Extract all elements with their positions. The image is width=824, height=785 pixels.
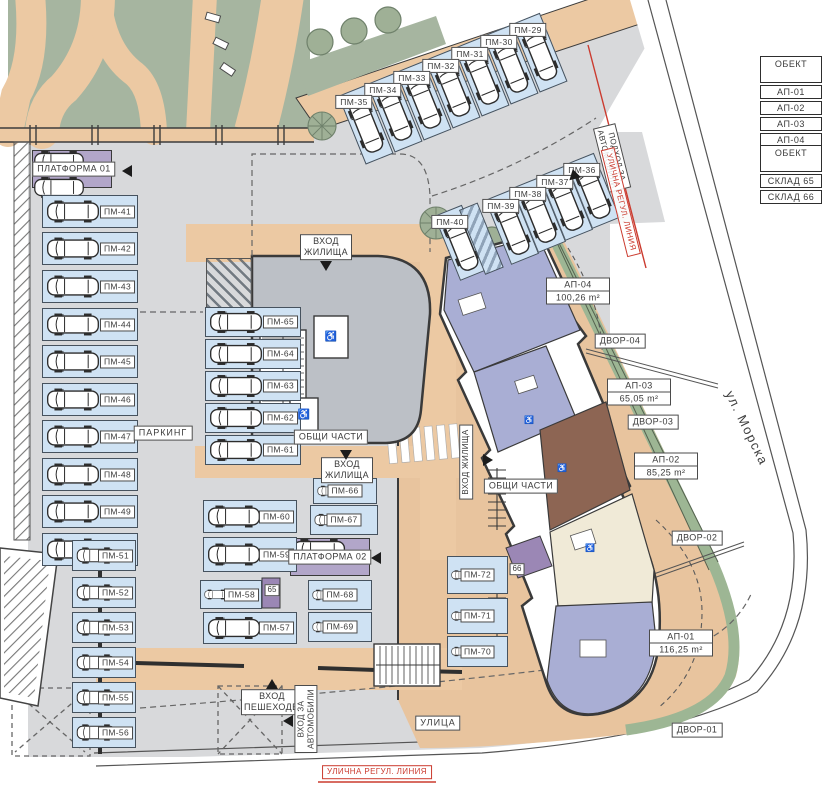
parking-spot-label: ПМ-49 bbox=[100, 505, 135, 518]
car-icon bbox=[207, 504, 261, 529]
car-icon bbox=[207, 616, 261, 640]
parking-spot-45: ПМ-45 bbox=[42, 345, 138, 378]
parking-spot-67: ПМ-67 bbox=[310, 505, 378, 535]
car-icon bbox=[209, 343, 263, 365]
bottom-stairs bbox=[374, 644, 440, 686]
yard-label-dvor-04: ДВОР-04 bbox=[595, 334, 646, 349]
parking-spot-61: ПМ-61 bbox=[205, 435, 301, 465]
parking-spot-51: ПМ-51 bbox=[72, 540, 136, 571]
parking-spot-58: ПМ-58 bbox=[200, 580, 262, 609]
parking-spot-label: ПМ-41 bbox=[100, 205, 135, 218]
parking-spot-label: ПМ-54 bbox=[98, 656, 133, 669]
legend-header: ОБЕКТ bbox=[760, 145, 822, 172]
car-icon bbox=[46, 349, 100, 374]
storage-66-label: 66 bbox=[510, 563, 525, 575]
car-icon bbox=[46, 424, 100, 449]
parking-spot-60: ПМ-60 bbox=[203, 500, 297, 533]
car-icon bbox=[46, 312, 100, 337]
entrance-arrow-icon bbox=[483, 454, 493, 466]
parking-spot-70: ПМ-70 bbox=[447, 636, 508, 667]
car-icon bbox=[207, 541, 261, 568]
legend-table-storage: ОБЕКТ СКЛАД 65 СКЛАД 66 bbox=[760, 145, 822, 206]
parking-spot-62: ПМ-62 bbox=[205, 403, 301, 433]
parking-spot-label: ПМ-40 bbox=[431, 215, 468, 229]
car-icon bbox=[46, 199, 100, 224]
car-icon bbox=[46, 274, 100, 299]
parking-spot-label: ПМ-69 bbox=[323, 620, 358, 633]
parking-spot-label: ПМ-62 bbox=[263, 411, 298, 424]
apartment-label-ap-04: АП-04 100,26 m² bbox=[546, 278, 610, 305]
entrance-residential-top-label: ВХОД ЖИЛИЩА bbox=[300, 234, 352, 260]
parking-spot-label: ПМ-65 bbox=[263, 315, 298, 328]
regulation-line-label-bottom: УЛИЧНА РЕГУЛ. ЛИНИЯ bbox=[322, 765, 432, 779]
parking-spot-label: ПМ-57 bbox=[259, 621, 294, 634]
parking-spot-43: ПМ-43 bbox=[42, 270, 138, 303]
parking-spot-64: ПМ-64 bbox=[205, 339, 301, 369]
common-areas-label-2: ОБЩИ ЧАСТИ bbox=[484, 479, 558, 494]
parking-spot-41: ПМ-41 bbox=[42, 195, 138, 228]
apartment-id: АП-04 bbox=[546, 278, 610, 292]
entrance-residential-right-label: ВХОД ЖИЛИЩА bbox=[459, 424, 473, 499]
car-icon bbox=[46, 499, 100, 524]
car-icon bbox=[46, 462, 100, 487]
legend-row: СКЛАД 66 bbox=[760, 190, 822, 204]
parking-spot-56: ПМ-56 bbox=[72, 717, 136, 748]
parking-spot-label: ПМ-67 bbox=[327, 513, 362, 526]
parking-spot-label: ПМ-63 bbox=[263, 379, 298, 392]
parking-spot-label: ПМ-71 bbox=[460, 609, 495, 622]
apartment-id: АП-01 bbox=[649, 630, 713, 644]
parking-spot-46: ПМ-46 bbox=[42, 383, 138, 416]
platform-2-label: ПЛАТФОРМА 02 bbox=[288, 550, 371, 565]
parking-spot-label: ПМ-35 bbox=[335, 95, 372, 109]
platform-2-arrow-icon bbox=[371, 552, 381, 564]
entrance-vehicles-label: ВХОД ЗА АВТОМОБИЛИ bbox=[294, 685, 317, 753]
parking-spot-label: ПМ-72 bbox=[460, 568, 495, 581]
parking-spot-label: ПМ-42 bbox=[100, 242, 135, 255]
parking-spot-47: ПМ-47 bbox=[42, 420, 138, 453]
parking-spot-53: ПМ-53 bbox=[72, 612, 136, 643]
storage-65-label: 65 bbox=[265, 584, 280, 596]
parking-spot-54: ПМ-54 bbox=[72, 647, 136, 678]
parking-spot-label: ПМ-46 bbox=[100, 393, 135, 406]
apartment-label-ap-03: АП-03 65,05 m² bbox=[607, 379, 671, 406]
parking-spot-label: ПМ-44 bbox=[100, 318, 135, 331]
parking-spot-63: ПМ-63 bbox=[205, 371, 301, 401]
yard-label-dvor-01: ДВОР-01 bbox=[672, 723, 723, 738]
walkway bbox=[0, 125, 314, 145]
parking-spot-52: ПМ-52 bbox=[72, 577, 136, 608]
parking-spot-label: ПМ-66 bbox=[328, 484, 363, 497]
legend-row: СКЛАД 65 bbox=[760, 174, 822, 188]
legend-row: АП-02 bbox=[760, 101, 822, 115]
parking-spot-label: ПМ-45 bbox=[100, 355, 135, 368]
car-icon bbox=[46, 387, 100, 412]
parking-spot-label: ПМ-61 bbox=[263, 443, 298, 456]
parking-spot-label: ПМ-43 bbox=[100, 280, 135, 293]
car-icon bbox=[46, 236, 100, 261]
car-icon bbox=[209, 375, 263, 397]
parking-spot-label: ПМ-55 bbox=[98, 691, 133, 704]
car-icon bbox=[209, 311, 263, 333]
car-icon bbox=[209, 407, 263, 429]
parking-spot-49: ПМ-49 bbox=[42, 495, 138, 528]
legend-table-apartments: ОБЕКТ АП-01 АП-02 АП-03 АП-04 bbox=[760, 56, 822, 149]
parking-spot-57: ПМ-57 bbox=[203, 612, 297, 644]
parking-spot-label: ПМ-58 bbox=[224, 588, 259, 601]
wheelchair-icon: ♿ bbox=[557, 464, 567, 473]
parking-spot-label: ПМ-47 bbox=[100, 430, 135, 443]
yard-label-dvor-03: ДВОР-03 bbox=[628, 415, 679, 430]
parking-spot-71: ПМ-71 bbox=[447, 598, 508, 634]
platform-1-arrow-icon bbox=[122, 165, 132, 177]
platform-1-label: ПЛАТФОРМА 01 bbox=[32, 162, 115, 177]
parking-spot-label: ПМ-39 bbox=[482, 199, 519, 213]
apartment-id: АП-03 bbox=[607, 379, 671, 393]
parking-spot-69: ПМ-69 bbox=[308, 612, 372, 642]
wheelchair-icon: ♿ bbox=[298, 410, 310, 421]
apartment-label-ap-02: АП-02 85,25 m² bbox=[634, 453, 698, 480]
car-icon bbox=[209, 439, 263, 461]
parking-spot-label: ПМ-48 bbox=[100, 468, 135, 481]
apartment-area: 85,25 m² bbox=[634, 466, 698, 480]
legend-row: АП-03 bbox=[760, 117, 822, 131]
wheelchair-icon: ♿ bbox=[585, 544, 595, 553]
parking-spot-label: ПМ-53 bbox=[98, 621, 133, 634]
parking-spot-59: ПМ-59 bbox=[203, 537, 297, 572]
parking-spot-44: ПМ-44 bbox=[42, 308, 138, 341]
park-area bbox=[8, 0, 310, 132]
entrance-arrow-icon bbox=[340, 450, 352, 460]
parking-spot-label: ПМ-68 bbox=[323, 588, 358, 601]
apartment-area: 65,05 m² bbox=[607, 392, 671, 406]
parking-spot-48: ПМ-48 bbox=[42, 458, 138, 491]
parking-spot-65: ПМ-65 bbox=[205, 307, 301, 337]
apartment-area: 100,26 m² bbox=[546, 291, 610, 305]
apartment-id: АП-02 bbox=[634, 453, 698, 467]
parking-spot-42: ПМ-42 bbox=[42, 232, 138, 265]
entrance-residential-mid-label: ВХОД ЖИЛИЩА bbox=[321, 457, 373, 483]
legend-row: АП-01 bbox=[760, 85, 822, 99]
entrance-arrow-icon bbox=[266, 679, 278, 689]
parking-spot-55: ПМ-55 bbox=[72, 682, 136, 713]
parking-spot-label: ПМ-51 bbox=[98, 549, 133, 562]
street-label: УЛИЦА bbox=[415, 716, 460, 731]
common-areas-label-1: ОБЩИ ЧАСТИ bbox=[294, 430, 368, 445]
wheelchair-icon: ♿ bbox=[524, 416, 534, 425]
parking-spot-label: ПМ-52 bbox=[98, 586, 133, 599]
parking-spot-68: ПМ-68 bbox=[308, 580, 372, 610]
legend-header: ОБЕКТ bbox=[760, 56, 822, 83]
parking-area-label: ПАРКИНГ bbox=[134, 426, 193, 441]
apartment-area: 116,25 m² bbox=[649, 643, 713, 657]
wheelchair-icon: ♿ bbox=[325, 332, 337, 343]
ramp-hatch bbox=[206, 258, 252, 308]
entrance-arrow-icon bbox=[283, 715, 293, 727]
apartment-label-ap-01: АП-01 116,25 m² bbox=[649, 630, 713, 657]
parking-spot-label: ПМ-60 bbox=[259, 510, 294, 523]
floor-plan-canvas: ПЛАТФОРМА 01 ПЛАТФОРМА 02 ПАРКИНГ 65 66 … bbox=[0, 0, 824, 785]
parking-spot-label: ПМ-56 bbox=[98, 726, 133, 739]
entrance-arrow-icon bbox=[320, 261, 332, 271]
parking-spot-label: ПМ-70 bbox=[460, 645, 495, 658]
yard-label-dvor-02: ДВОР-02 bbox=[672, 531, 723, 546]
parking-spot-label: ПМ-64 bbox=[263, 347, 298, 360]
parking-spot-72: ПМ-72 bbox=[447, 556, 508, 594]
